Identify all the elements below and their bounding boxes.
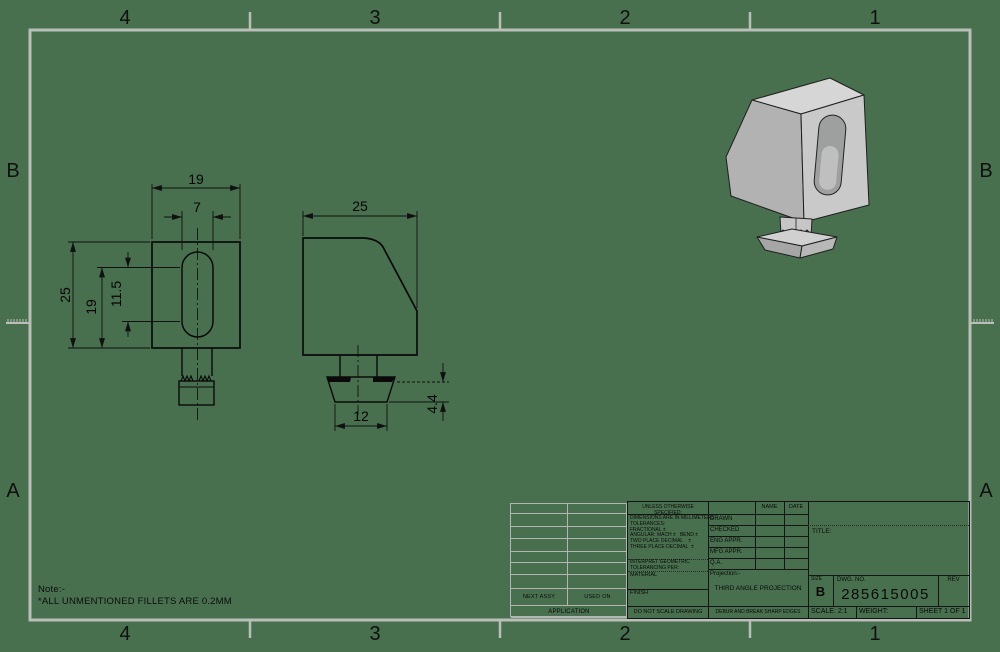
finish-label: FINISH	[630, 590, 706, 598]
table-cell	[568, 575, 627, 589]
do-not-scale-label: DO NOT SCALE DRAWING	[628, 606, 708, 618]
dim-front-slot-top: 19	[83, 299, 99, 315]
side-serration-left	[327, 377, 351, 382]
projection-label: Projection:-	[710, 571, 780, 579]
spec-header: UNLESS OTHERWISE SPECIFIED:	[629, 505, 707, 514]
dwg-number: 285615005	[833, 586, 938, 604]
table-cell	[511, 552, 568, 563]
zone-col-bottom-3: 3	[369, 623, 380, 645]
application-table: NEXT ASSY USED ON APPLICATION	[510, 503, 627, 617]
zone-row-left-b: B	[6, 160, 19, 182]
dim-front-slot-width: 7	[193, 199, 201, 215]
tolerance-block: DIMENSIONS ARE IN MILLIMETERS TOLERANCES…	[630, 516, 707, 558]
zone-row-right-a: A	[979, 480, 993, 502]
front-dimensions	[68, 184, 240, 348]
side-serration-right	[373, 377, 395, 382]
table-cell	[511, 539, 568, 552]
dim-side-width: 25	[352, 198, 368, 214]
table-cell	[568, 514, 627, 527]
dim-side-foot-height: 4.4	[424, 394, 440, 414]
size-label: SIZE	[811, 577, 831, 584]
zone-row-left-a: A	[6, 480, 20, 502]
weight-label: WEIGHT:	[859, 606, 915, 618]
drawing-sheet: { "sheet": { "background_color": "#48704…	[0, 0, 1000, 647]
next-assy-cell: NEXT ASSY	[511, 589, 568, 606]
zone-col-bottom-1: 1	[869, 623, 880, 645]
material-label: MATERIAL	[630, 572, 706, 580]
table-cell	[511, 514, 568, 527]
dim-side-foot-width: 12	[353, 408, 369, 424]
tolerance-line: THREE PLACE DECIMAL ±	[630, 545, 707, 551]
dim-front-slot-length: 11.5	[108, 281, 124, 307]
dim-front-height: 25	[57, 287, 73, 303]
interpret-line: TOLERANCING PER:	[630, 566, 707, 572]
table-cell	[568, 504, 627, 514]
name-header: NAME	[755, 504, 784, 514]
table-cell	[568, 552, 627, 563]
table-cell	[568, 539, 627, 552]
approval-row-mfg-appr: MFG APPR.	[710, 549, 755, 558]
serration-left	[181, 376, 193, 381]
zone-col-top-1: 1	[869, 7, 880, 29]
zone-col-top-2: 2	[619, 7, 630, 29]
side-view: 25 12 4.4	[303, 198, 449, 431]
front-view: 19 7 25 19 11.5	[57, 171, 240, 420]
approval-row-drawn: DRAWN	[710, 516, 755, 525]
note-text: *ALL UNMENTIONED FILLETS ARE 0.2MM	[38, 596, 232, 608]
side-part-outline	[303, 238, 417, 402]
table-cell	[568, 527, 627, 539]
zone-col-bottom-4: 4	[119, 623, 130, 645]
approval-row-checked: CHECKED	[710, 527, 755, 536]
zone-row-right-b: B	[979, 160, 992, 182]
drawing-note: Note:- *ALL UNMENTIONED FILLETS ARE 0.2M…	[38, 584, 232, 607]
used-on-cell: USED ON	[568, 589, 627, 606]
zone-col-top-4: 4	[119, 7, 130, 29]
scale-label: SCALE: 2:1	[811, 606, 855, 618]
serration-right	[199, 376, 211, 381]
dwg-no-label: DWG. NO.	[837, 577, 907, 585]
table-cell	[568, 563, 627, 575]
table-cell	[511, 575, 568, 589]
table-cell	[511, 563, 568, 575]
approval-row-eng-appr: ENG APPR.	[710, 538, 755, 547]
iso-slope-face	[726, 100, 804, 222]
title-block: NEXT ASSY USED ON APPLICATION UNLESS OTH…	[510, 497, 968, 618]
date-header: DATE	[784, 504, 808, 514]
sheet-label: SHEET 1 OF 1	[919, 606, 969, 618]
title-label: TITLE:	[812, 528, 872, 537]
side-dim-texts: 25 12 4.4	[352, 198, 440, 424]
isometric-view	[726, 78, 869, 258]
interpret-block: INTERPRET GEOMETRIC TOLERANCING PER:	[630, 560, 707, 571]
note-label: Note:-	[38, 584, 232, 596]
dim-front-width: 19	[188, 171, 204, 187]
application-cell: APPLICATION	[511, 606, 627, 618]
zone-col-top-3: 3	[369, 7, 380, 29]
approval-row-qa: Q.A.	[710, 560, 755, 569]
front-part-outline	[152, 242, 240, 405]
title-block-main: UNLESS OTHERWISE SPECIFIED: DIMENSIONS A…	[627, 501, 970, 619]
size-value: B	[808, 584, 833, 602]
centering-marks	[6, 319, 994, 323]
zone-col-bottom-2: 2	[619, 623, 630, 645]
projection-value: THIRD ANGLE PROJECTION	[708, 585, 808, 595]
table-cell	[511, 527, 568, 539]
rev-label: REV	[938, 577, 969, 585]
table-cell	[511, 504, 568, 514]
edges-note: DEBUR AND BREAK SHARP EDGES	[708, 606, 808, 618]
